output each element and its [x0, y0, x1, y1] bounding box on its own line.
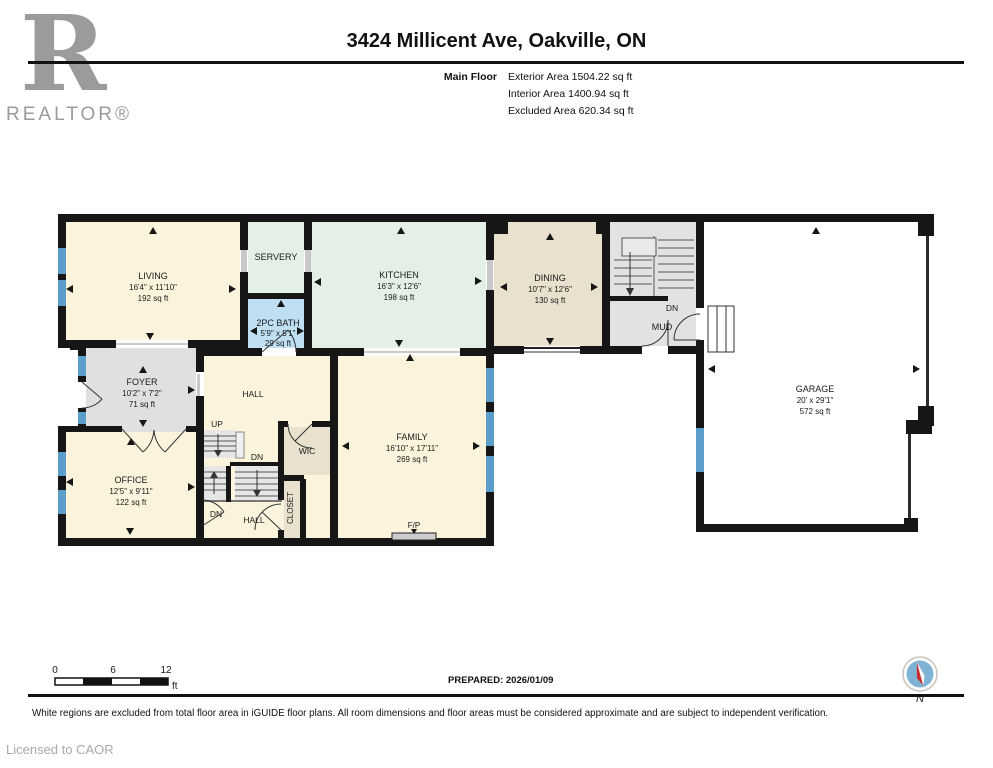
- label-garage-name: GARAGE: [796, 384, 835, 394]
- label-living-area: 192 sq ft: [138, 294, 169, 303]
- floor-plan: LIVING 16'4" x 11'10" 192 sq ft SERVERY …: [0, 0, 993, 768]
- label-up: UP: [211, 419, 223, 429]
- label-kitchen-area: 198 sq ft: [384, 293, 415, 302]
- compass-icon: N: [903, 657, 937, 705]
- label-bath-dims: 5'9" x 5'1": [261, 329, 296, 338]
- label-garage-dims: 20' x 29'1": [797, 396, 834, 405]
- label-kitchen-name: KITCHEN: [379, 270, 419, 280]
- label-kitchen-dims: 16'3" x 12'6": [377, 282, 421, 291]
- label-wic: WIC: [299, 446, 316, 456]
- page: 3424 Millicent Ave, Oakville, ON R REALT…: [0, 0, 993, 768]
- scale-unit: ft: [172, 681, 178, 692]
- garage-step: [708, 306, 734, 352]
- disclaimer-text: White regions are excluded from total fl…: [32, 708, 972, 719]
- label-family-name: FAMILY: [396, 432, 427, 442]
- label-hall-upper: HALL: [242, 389, 264, 399]
- label-office-area: 122 sq ft: [116, 498, 147, 507]
- scale-6: 6: [110, 665, 116, 676]
- label-stairs-dn: DN: [666, 303, 678, 313]
- label-dn-lower: DN: [210, 509, 222, 519]
- label-bath-name: 2PC BATH: [256, 318, 299, 328]
- label-servery: SERVERY: [255, 252, 298, 262]
- label-bath-area: 29 sq ft: [265, 339, 292, 348]
- room-office-fill: [66, 432, 196, 538]
- scale-0: 0: [52, 665, 58, 676]
- fireplace: [392, 533, 436, 540]
- label-closet: CLOSET: [286, 492, 295, 524]
- label-dn-mid: DN: [251, 452, 263, 462]
- label-fireplace: F/P: [408, 521, 420, 530]
- prepared-date: PREPARED: 2026/01/09: [448, 675, 553, 686]
- footer-rule: [28, 694, 964, 697]
- label-dining-name: DINING: [534, 273, 566, 283]
- scale-12: 12: [160, 665, 172, 676]
- label-hall-lower: HALL: [243, 515, 265, 525]
- label-family-area: 269 sq ft: [397, 455, 428, 464]
- license-text: Licensed to CAOR: [6, 742, 114, 757]
- room-dining-fill: [494, 222, 602, 346]
- room-living-fill: [66, 222, 240, 340]
- label-foyer-area: 71 sq ft: [129, 400, 156, 409]
- label-living-dims: 16'4" x 11'10": [129, 283, 177, 292]
- label-garage-area: 572 sq ft: [800, 407, 831, 416]
- label-dining-dims: 10'7" x 12'6": [528, 285, 572, 294]
- scale-bar: 0 6 12 ft: [52, 665, 178, 692]
- label-dining-area: 130 sq ft: [535, 296, 566, 305]
- label-office-dims: 12'5" x 9'11": [109, 487, 152, 496]
- label-living-name: LIVING: [138, 271, 168, 281]
- label-office-name: OFFICE: [115, 475, 148, 485]
- label-foyer-dims: 10'2" x 7'2": [122, 389, 162, 398]
- label-mud: MUD: [652, 322, 673, 332]
- label-family-dims: 16'10" x 17'11": [386, 444, 438, 453]
- label-foyer-name: FOYER: [126, 377, 158, 387]
